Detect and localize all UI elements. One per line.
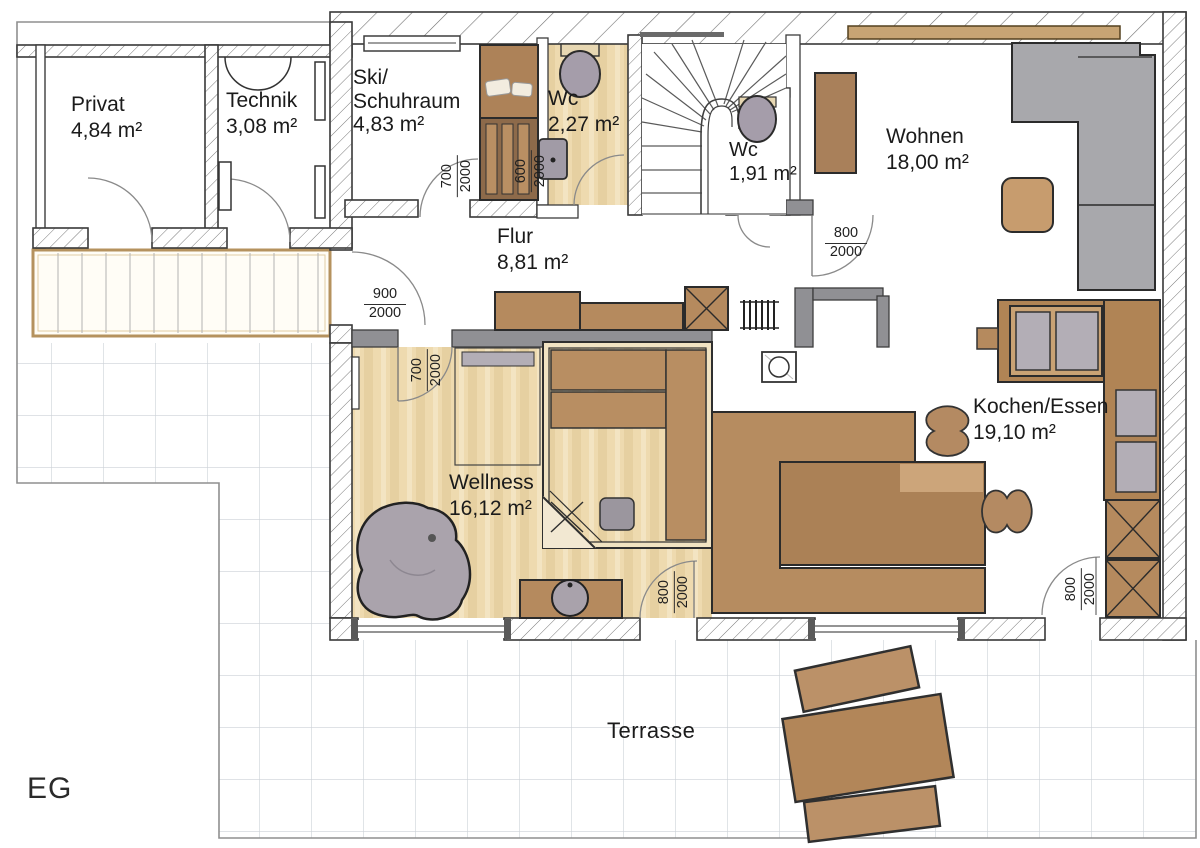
sideboard (495, 292, 580, 330)
sauna-bench (551, 350, 666, 390)
radiator-icon (740, 300, 779, 330)
sauna-bench (666, 350, 706, 540)
door-dim-700-2000-wellness: 700 2000 (410, 347, 444, 393)
boiler-arc-icon (225, 57, 291, 90)
room-label-ski-schuhraum: Ski/ Schuhraum 4,83 m² (353, 66, 460, 137)
terrace-label: Terrasse (607, 718, 695, 744)
floor-plan-page: Privat 4,84 m² Technik 3,08 m² Ski/ Schu… (0, 0, 1200, 848)
cooktop-icon (1116, 390, 1156, 436)
wood-deck (33, 250, 330, 336)
tall-cabinet-x (1106, 500, 1160, 617)
sauna-bench (551, 392, 666, 428)
room-label-wohnen: Wohnen 18,00 m² (886, 124, 969, 175)
sauna-stove-icon (600, 498, 634, 530)
oven-icon (1116, 442, 1156, 492)
room-label-kochen-essen: Kochen/Essen 19,10 m² (973, 394, 1108, 445)
room-label-wellness: Wellness 16,12 m² (449, 470, 534, 521)
sink-basin-icon (1056, 312, 1098, 370)
sauna (543, 342, 712, 548)
door-dim-900-2000: 900 2000 (362, 287, 408, 321)
window-sill (848, 26, 1120, 39)
wall-radiator-icon (352, 357, 359, 409)
door-dim-700-2000-ski: 700 2000 (440, 153, 474, 199)
sink-basin-icon (1016, 312, 1050, 370)
vanity-sink (520, 580, 622, 618)
room-label-wc-191: Wc 1,91 m² (729, 138, 797, 187)
room-label-privat: Privat 4,84 m² (71, 92, 142, 143)
door-dim-600-2000-wc: 600 2000 (514, 148, 548, 194)
door-dim-800-2000-terrace: 800 2000 (657, 569, 691, 615)
sofa (1012, 43, 1155, 290)
room-label-flur: Flur 8,81 m² (497, 224, 568, 275)
floor-level-label: EG (27, 772, 72, 806)
toilet-icon (738, 96, 776, 142)
chair (982, 490, 1032, 532)
chimney-icon (762, 352, 796, 382)
chair (926, 406, 968, 456)
wc-191-fixtures (738, 96, 776, 142)
door-dim-800-2000-kitchen: 800 2000 (1064, 566, 1098, 612)
tall-sideboard (815, 73, 856, 173)
coffee-table (1002, 178, 1053, 232)
low-cabinet (580, 303, 683, 330)
room-label-wc-227: Wc 2,27 m² (548, 86, 619, 137)
door-dim-800-2000-wohnen: 800 2000 (823, 226, 869, 260)
room-label-technik: Technik 3,08 m² (226, 88, 297, 139)
